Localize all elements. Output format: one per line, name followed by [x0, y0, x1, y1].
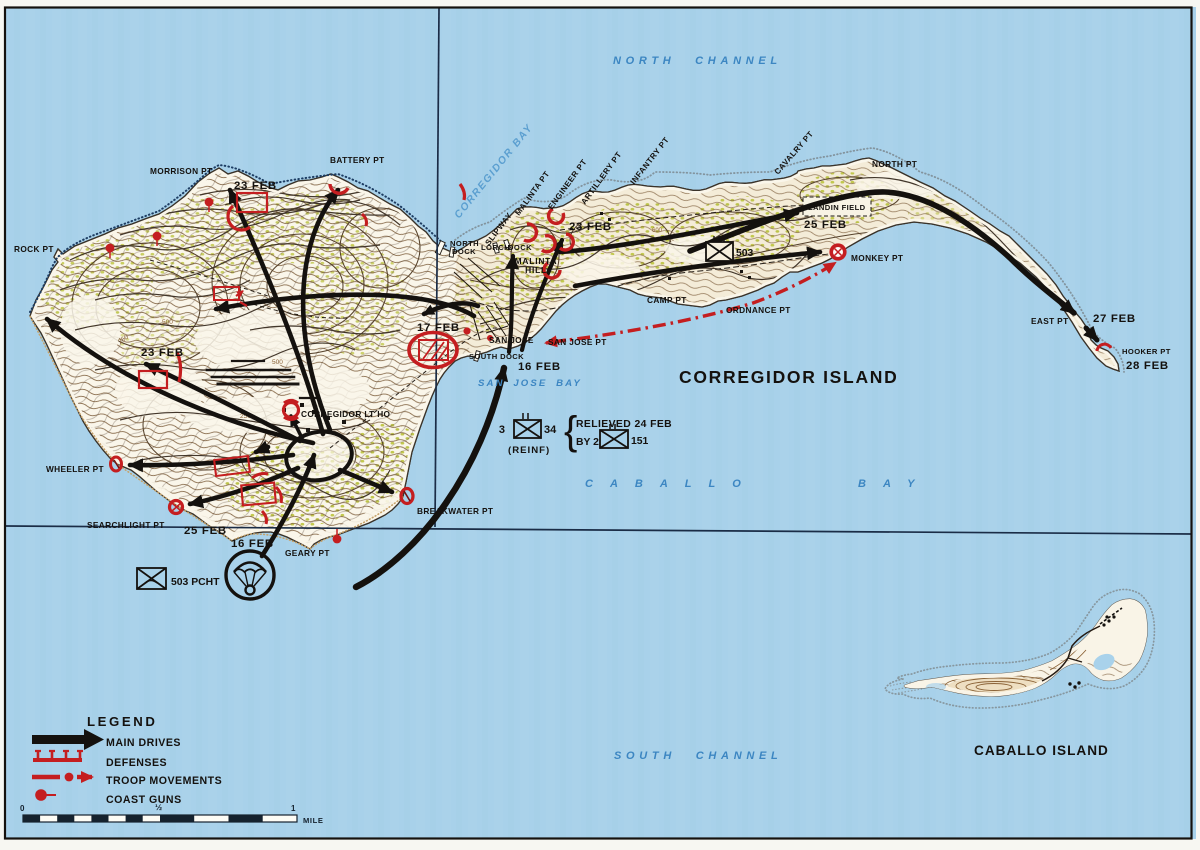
svg-text:25 FEB: 25 FEB — [184, 525, 227, 537]
svg-text:CORREGIDOR LT HO: CORREGIDOR LT HO — [301, 409, 391, 419]
svg-text:MORRISON PT: MORRISON PT — [150, 166, 212, 176]
svg-text:CABALLO ISLAND: CABALLO ISLAND — [974, 743, 1109, 758]
svg-text:3: 3 — [499, 424, 505, 436]
svg-text:500: 500 — [272, 359, 283, 366]
svg-text:LANDIN FIELD: LANDIN FIELD — [808, 203, 866, 212]
svg-text:RELIEVED 24 FEB: RELIEVED 24 FEB — [576, 419, 672, 430]
svg-text:23 FEB: 23 FEB — [141, 347, 184, 359]
svg-text:SAN JOSE BAY: SAN JOSE BAY — [478, 378, 582, 389]
svg-text:500: 500 — [162, 319, 173, 326]
svg-text:COAST GUNS: COAST GUNS — [106, 794, 182, 806]
svg-text:34: 34 — [544, 424, 557, 436]
svg-text:25 FEB: 25 FEB — [804, 219, 847, 231]
svg-text:600: 600 — [652, 228, 663, 234]
svg-text:ROCK PT: ROCK PT — [14, 244, 54, 254]
svg-text:16 FEB: 16 FEB — [231, 538, 274, 550]
svg-text:23 FEB: 23 FEB — [234, 180, 277, 192]
svg-text:EAST PT: EAST PT — [1031, 316, 1069, 326]
svg-text:CORREGIDOR ISLAND: CORREGIDOR ISLAND — [679, 367, 898, 387]
svg-text:NORTH PT: NORTH PT — [872, 159, 917, 169]
svg-text:16 FEB: 16 FEB — [518, 361, 561, 373]
svg-text:503 PCHT: 503 PCHT — [171, 577, 220, 588]
svg-text:28 FEB: 28 FEB — [1126, 360, 1169, 372]
svg-text:HOOKER PT: HOOKER PT — [1122, 347, 1171, 356]
svg-text:CAMP PT: CAMP PT — [647, 295, 687, 305]
svg-text:DOCK: DOCK — [508, 243, 532, 252]
svg-text:(REINF): (REINF) — [508, 445, 550, 456]
svg-text:LEGEND: LEGEND — [87, 714, 158, 729]
svg-text:1: 1 — [291, 804, 296, 813]
svg-text:CABALLO: CABALLO — [585, 478, 758, 490]
svg-text:MAIN DRIVES: MAIN DRIVES — [106, 737, 181, 749]
svg-text:MILE: MILE — [303, 816, 324, 825]
svg-text:½: ½ — [155, 802, 162, 812]
svg-text:23 FEB: 23 FEB — [569, 221, 612, 233]
svg-text:SOUTH CHANNEL: SOUTH CHANNEL — [614, 750, 782, 762]
svg-text:503: 503 — [736, 248, 754, 259]
svg-text:0: 0 — [20, 804, 25, 813]
svg-text:HILL: HILL — [525, 265, 547, 275]
svg-text:27 FEB: 27 FEB — [1093, 313, 1136, 325]
svg-text:SOUTH DOCK: SOUTH DOCK — [469, 352, 524, 361]
svg-text:ORDNANCE PT: ORDNANCE PT — [726, 305, 791, 315]
svg-text:SAN JOSE: SAN JOSE — [489, 335, 534, 345]
svg-text:BREAKWATER PT: BREAKWATER PT — [417, 506, 493, 516]
svg-text:DEFENSES: DEFENSES — [106, 757, 167, 769]
svg-text:BY 2: BY 2 — [576, 437, 599, 448]
svg-text:BATTERY PT: BATTERY PT — [330, 155, 385, 165]
svg-text:BAY: BAY — [858, 478, 931, 490]
svg-text:TROOP MOVEMENTS: TROOP MOVEMENTS — [106, 775, 222, 787]
svg-text:SEARCHLIGHT PT: SEARCHLIGHT PT — [87, 520, 165, 530]
svg-text:MONKEY PT: MONKEY PT — [851, 253, 903, 263]
svg-text:WHEELER PT: WHEELER PT — [46, 464, 104, 474]
svg-text:NORTH CHANNEL: NORTH CHANNEL — [613, 55, 782, 67]
svg-text:17 FEB: 17 FEB — [417, 322, 460, 334]
svg-text:151: 151 — [631, 436, 649, 447]
svg-text:GEARY PT: GEARY PT — [285, 548, 330, 558]
svg-text:DOCK: DOCK — [452, 247, 476, 256]
svg-text:SAN JOSE PT: SAN JOSE PT — [548, 337, 607, 347]
